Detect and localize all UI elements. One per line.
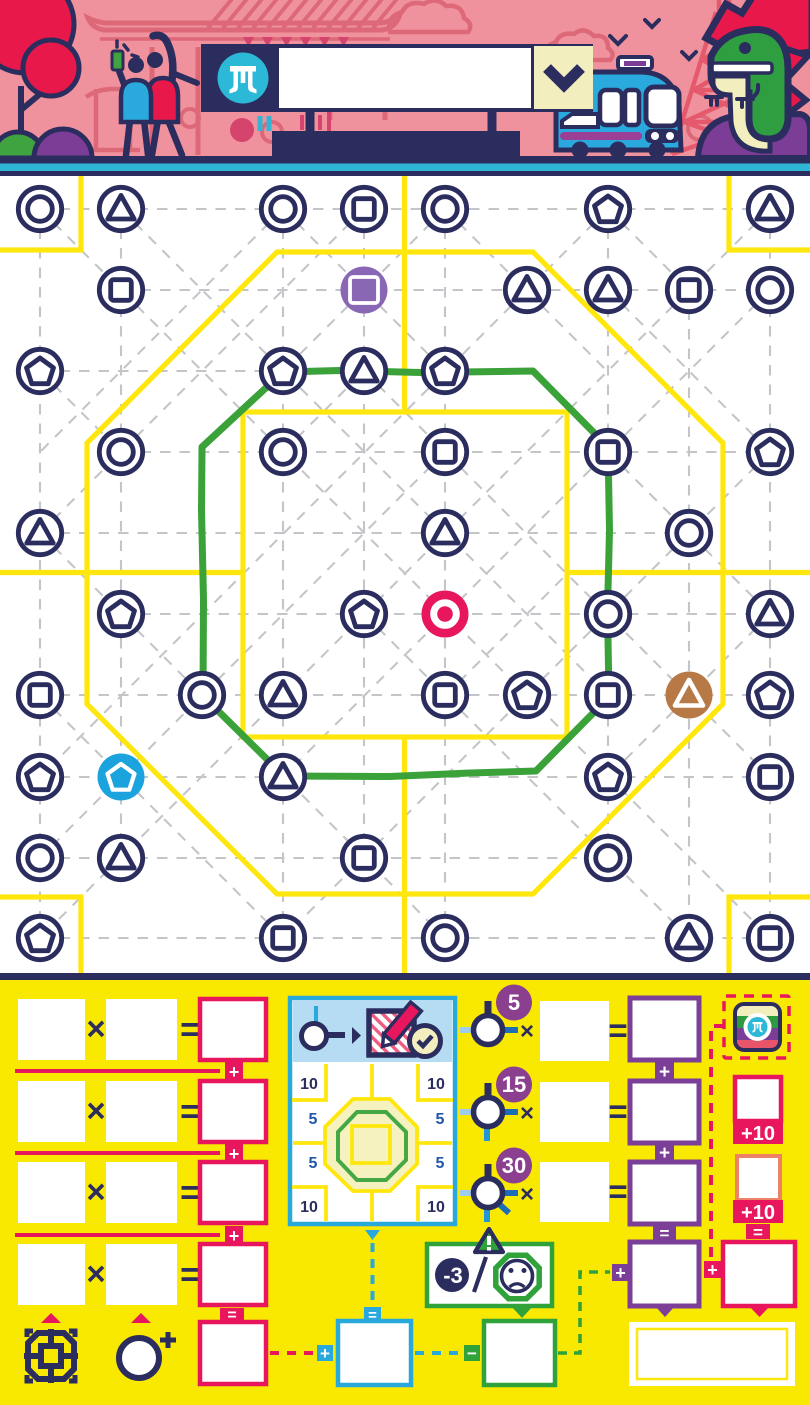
svg-text:15: 15	[502, 1072, 526, 1097]
svg-text:+: +	[229, 1144, 240, 1164]
svg-text:+: +	[229, 1226, 240, 1246]
svg-text:×: ×	[86, 1255, 105, 1292]
svg-text:=: =	[660, 1224, 670, 1243]
svg-text:+: +	[320, 1344, 330, 1363]
svg-text:×: ×	[520, 1018, 534, 1045]
svg-text:=: =	[753, 1223, 763, 1242]
svg-text:+10: +10	[741, 1202, 775, 1224]
svg-text:+: +	[615, 1263, 626, 1283]
svg-text:+: +	[707, 1260, 718, 1280]
svg-text:=: =	[180, 1093, 200, 1131]
svg-text:5: 5	[508, 990, 520, 1015]
svg-text:+: +	[229, 1062, 240, 1082]
svg-text:+10: +10	[741, 1123, 775, 1145]
svg-text:5: 5	[436, 1155, 445, 1172]
svg-text:=: =	[608, 1093, 627, 1130]
svg-text:×: ×	[86, 1092, 105, 1129]
svg-text:=: =	[180, 1174, 200, 1212]
svg-text:×: ×	[86, 1173, 105, 1210]
svg-text:−: −	[467, 1344, 477, 1363]
svg-text:=: =	[608, 1173, 627, 1210]
svg-text:-3: -3	[443, 1263, 463, 1288]
svg-text:10: 10	[427, 1199, 445, 1216]
svg-text:5: 5	[309, 1111, 318, 1128]
svg-text:+: +	[659, 1143, 670, 1164]
svg-text:5: 5	[309, 1155, 318, 1172]
svg-text:×: ×	[86, 1010, 105, 1047]
svg-text:30: 30	[502, 1153, 526, 1178]
svg-text:10: 10	[427, 1076, 445, 1093]
svg-text:×: ×	[520, 1100, 534, 1127]
svg-text:10: 10	[300, 1199, 318, 1216]
svg-text:=: =	[180, 1011, 200, 1049]
svg-text:10: 10	[300, 1076, 318, 1093]
svg-text:+: +	[659, 1062, 670, 1083]
svg-text:=: =	[608, 1012, 627, 1049]
svg-text:×: ×	[520, 1181, 534, 1208]
svg-text:5: 5	[436, 1111, 445, 1128]
svg-text:=: =	[180, 1256, 200, 1294]
